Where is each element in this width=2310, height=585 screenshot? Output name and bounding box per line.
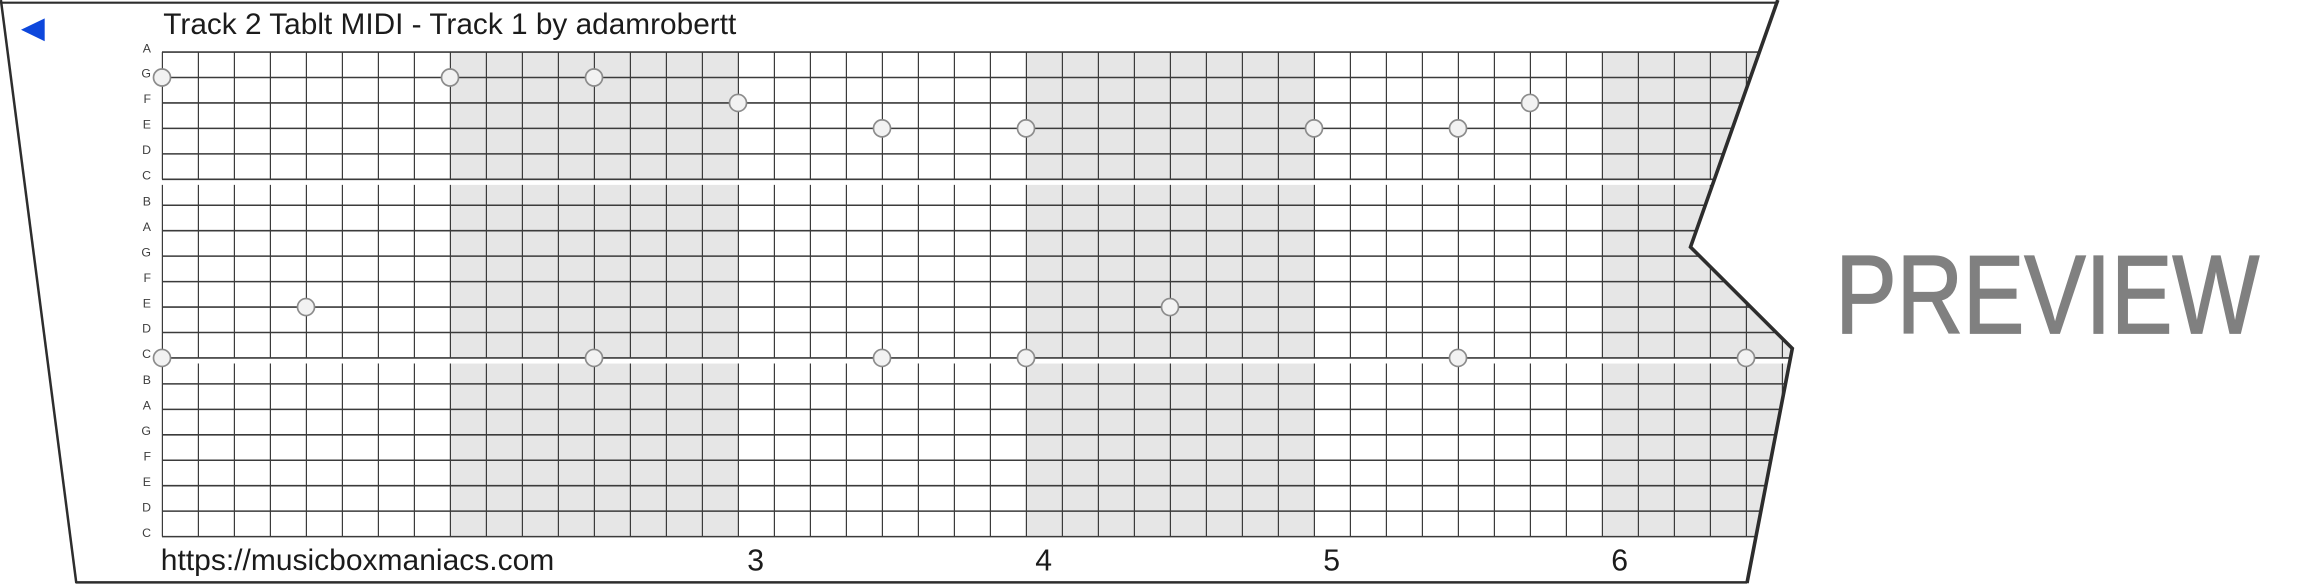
svg-text:D: D: [142, 500, 151, 514]
svg-text:6: 6: [1611, 545, 1628, 578]
svg-text:B: B: [143, 373, 151, 387]
svg-text:D: D: [142, 143, 151, 157]
svg-text:Track 2 Tablt MIDI - Track 1 b: Track 2 Tablt MIDI - Track 1 by adamrobe…: [163, 8, 737, 41]
svg-text:B: B: [143, 194, 151, 208]
svg-text:F: F: [143, 271, 151, 285]
svg-text:4: 4: [1035, 545, 1052, 578]
svg-text:5: 5: [1323, 545, 1340, 578]
svg-text:A: A: [143, 399, 152, 413]
svg-text:PREVIEW: PREVIEW: [1835, 233, 2259, 357]
svg-text:https://musicboxmaniacs.com: https://musicboxmaniacs.com: [161, 544, 554, 577]
svg-text:G: G: [141, 424, 151, 438]
svg-text:E: E: [143, 296, 151, 310]
svg-text:C: C: [142, 347, 151, 361]
svg-text:F: F: [143, 92, 151, 106]
svg-text:E: E: [143, 118, 151, 132]
svg-text:G: G: [141, 245, 151, 259]
svg-text:E: E: [143, 475, 151, 489]
svg-text:F: F: [143, 449, 151, 463]
svg-text:C: C: [142, 169, 151, 183]
svg-text:A: A: [143, 41, 152, 55]
svg-text:C: C: [142, 526, 151, 540]
svg-text:A: A: [143, 220, 152, 234]
svg-text:G: G: [141, 67, 151, 81]
svg-text:D: D: [142, 322, 151, 336]
svg-text:3: 3: [747, 545, 764, 578]
